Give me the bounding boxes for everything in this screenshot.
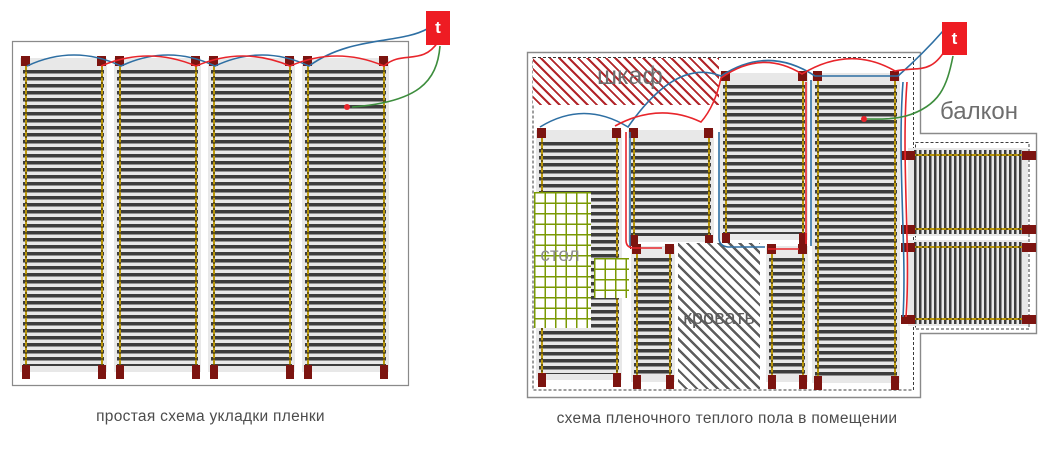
terminal-block	[192, 365, 200, 379]
terminal-block	[380, 365, 388, 379]
film-strip	[114, 58, 201, 372]
thermostat-icon: t	[942, 22, 967, 55]
heating-stripes	[631, 142, 711, 236]
heating-stripes	[634, 258, 672, 376]
terminal-block	[209, 56, 218, 66]
film-strip	[631, 246, 675, 382]
film-strip	[766, 246, 808, 382]
bus-bar	[912, 318, 1024, 320]
bus-bar	[894, 81, 896, 379]
terminal-block	[210, 365, 218, 379]
bus-bar	[912, 228, 1024, 230]
bus-bar	[289, 66, 291, 368]
terminal-block	[799, 375, 807, 389]
terminal-block	[21, 56, 30, 66]
bus-bar	[195, 66, 197, 368]
bus-bar	[25, 66, 27, 368]
scene: простая схема укладки пленки схема плено…	[0, 0, 1052, 450]
terminal-block	[704, 128, 713, 138]
bus-bar	[101, 66, 103, 368]
bed-label: кровать	[678, 308, 760, 328]
terminal-block	[1022, 243, 1036, 252]
terminal-block	[613, 373, 621, 387]
wardrobe-label: шкаф	[560, 64, 700, 89]
film-strip	[302, 58, 389, 372]
terminal-block	[901, 151, 915, 160]
table-label: стол	[534, 246, 586, 265]
terminal-block	[901, 315, 915, 324]
terminal-block	[665, 244, 674, 254]
film-strip	[208, 58, 295, 372]
terminal-block	[286, 365, 294, 379]
bus-bar	[771, 254, 773, 378]
heating-stripes	[305, 70, 386, 366]
terminal-block	[116, 365, 124, 379]
terminal-block	[901, 243, 915, 252]
terminal-block	[633, 375, 641, 389]
heating-stripes	[117, 70, 198, 366]
bus-bar	[802, 254, 804, 378]
terminal-block	[890, 71, 899, 81]
bus-bar	[213, 66, 215, 368]
heating-stripes	[914, 242, 1022, 324]
bus-bar	[669, 254, 671, 378]
terminal-block	[379, 56, 388, 66]
heating-stripes	[815, 85, 897, 377]
bus-bar	[708, 138, 710, 238]
bus-bar	[383, 66, 385, 368]
right-diagram-caption: схема пленочного теплого пола в помещени…	[527, 410, 927, 428]
terminal-block	[285, 56, 294, 66]
heating-stripes	[23, 70, 104, 366]
terminal-block	[798, 71, 807, 81]
bus-bar	[636, 254, 638, 378]
bus-bar	[307, 66, 309, 368]
bus-bar	[119, 66, 121, 368]
terminal-block	[891, 376, 899, 390]
terminal-block	[632, 244, 641, 254]
terminal-block	[1022, 315, 1036, 324]
thermostat-icon: t	[426, 11, 450, 45]
terminal-block	[814, 376, 822, 390]
terminal-block	[97, 56, 106, 66]
balcony-label: балкон	[933, 100, 1025, 124]
terminal-block	[22, 365, 30, 379]
table-area-extension	[594, 258, 629, 298]
bus-bar	[912, 246, 1024, 248]
terminal-block	[1022, 225, 1036, 234]
terminal-block	[1022, 151, 1036, 160]
bus-bar	[616, 138, 618, 376]
terminal-block	[191, 56, 200, 66]
bus-bar	[725, 81, 727, 236]
terminal-block	[304, 365, 312, 379]
film-strip	[812, 73, 900, 383]
film-strip	[908, 240, 1028, 326]
film-strip	[908, 148, 1028, 236]
terminal-block	[666, 375, 674, 389]
terminal-block	[798, 244, 807, 254]
terminal-block	[768, 375, 776, 389]
terminal-block	[767, 244, 776, 254]
left-diagram-caption: простая схема укладки пленки	[12, 408, 409, 426]
film-strip	[628, 130, 714, 242]
terminal-block	[612, 128, 621, 138]
bus-bar	[802, 81, 804, 236]
terminal-block	[901, 225, 915, 234]
terminal-block	[303, 56, 312, 66]
heating-stripes	[723, 85, 805, 234]
terminal-block	[537, 128, 546, 138]
bus-bar	[817, 81, 819, 379]
film-strip	[720, 73, 808, 240]
film-strip	[20, 58, 107, 372]
heating-stripes	[211, 70, 292, 366]
heating-stripes	[769, 258, 805, 376]
terminal-block	[629, 128, 638, 138]
terminal-block	[538, 373, 546, 387]
bus-bar	[912, 154, 1024, 156]
terminal-block	[813, 71, 822, 81]
bus-bar	[633, 138, 635, 238]
terminal-block	[115, 56, 124, 66]
heating-stripes	[914, 150, 1022, 234]
terminal-block	[721, 71, 730, 81]
terminal-block	[98, 365, 106, 379]
